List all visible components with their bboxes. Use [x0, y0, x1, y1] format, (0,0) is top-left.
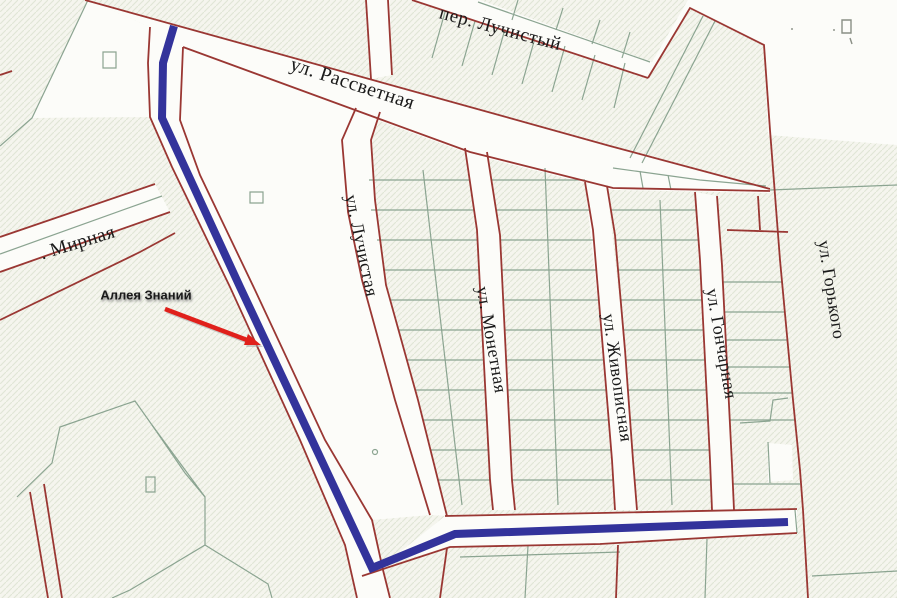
open-parcel-area	[768, 443, 793, 482]
cadastral-map: пер. Лучистыйул. Рассветная. Мирнаяул. Л…	[0, 0, 897, 598]
map-canvas: пер. Лучистыйул. Рассветная. Мирнаяул. Л…	[0, 0, 897, 598]
annotation-label: Аллея Знаний	[100, 287, 191, 302]
